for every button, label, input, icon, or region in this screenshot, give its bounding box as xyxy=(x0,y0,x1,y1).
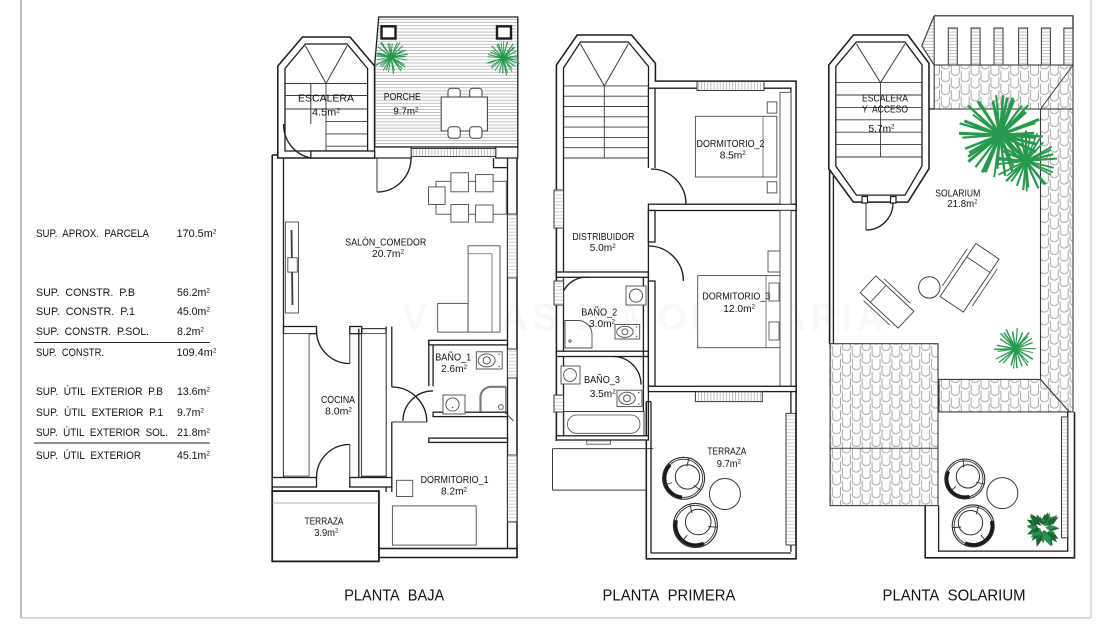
svg-text:3.9m2: 3.9m2 xyxy=(314,527,338,539)
svg-text:SUP. ÚTIL EXTERIOR SOL.: SUP. ÚTIL EXTERIOR SOL. xyxy=(36,426,168,439)
svg-text:12.0m2: 12.0m2 xyxy=(723,303,755,315)
svg-text:Y ACCESO: Y ACCESO xyxy=(862,104,908,116)
svg-text:ESCALERA: ESCALERA xyxy=(862,92,908,104)
svg-text:8.2m2: 8.2m2 xyxy=(441,486,467,498)
svg-text:PORCHE: PORCHE xyxy=(384,91,421,103)
svg-text:9.7m2: 9.7m2 xyxy=(393,106,418,118)
svg-text:109.4m2: 109.4m2 xyxy=(177,347,217,359)
svg-text:BAÑO_3: BAÑO_3 xyxy=(584,373,620,386)
svg-text:2.6m2: 2.6m2 xyxy=(441,363,467,375)
svg-text:SUP. APROX. PARCELA: SUP. APROX. PARCELA xyxy=(36,228,150,240)
svg-text:8.0m2: 8.0m2 xyxy=(325,406,352,418)
svg-text:SUP. ÚTIL EXTERIOR: SUP. ÚTIL EXTERIOR xyxy=(36,449,141,462)
svg-text:45.0m2: 45.0m2 xyxy=(177,306,210,318)
svg-text:DORMITORIO_3: DORMITORIO_3 xyxy=(702,290,770,302)
svg-text:TERRAZA: TERRAZA xyxy=(305,516,344,528)
svg-text:PLANTA BAJA: PLANTA BAJA xyxy=(344,587,445,604)
svg-text:DISTRIBUIDOR: DISTRIBUIDOR xyxy=(572,231,634,243)
svg-text:DORMITORIO_2: DORMITORIO_2 xyxy=(697,138,765,150)
svg-text:SALÓN_COMEDOR: SALÓN_COMEDOR xyxy=(345,235,426,248)
svg-text:8.5m2: 8.5m2 xyxy=(720,149,746,161)
svg-text:5.0m2: 5.0m2 xyxy=(590,242,616,254)
svg-text:TERRAZA: TERRAZA xyxy=(707,446,746,458)
svg-text:SUP. CONSTR. P.1: SUP. CONSTR. P.1 xyxy=(36,306,135,318)
svg-text:BAÑO_2: BAÑO_2 xyxy=(581,306,617,319)
svg-text:20.7m2: 20.7m2 xyxy=(372,248,404,260)
svg-text:5.7m2: 5.7m2 xyxy=(869,123,895,135)
svg-text:9.7m2: 9.7m2 xyxy=(717,458,741,470)
svg-text:PLANTA SOLARIUM: PLANTA SOLARIUM xyxy=(883,587,1026,604)
svg-text:9.7m2: 9.7m2 xyxy=(177,407,204,419)
svg-text:21.8m2: 21.8m2 xyxy=(177,427,210,439)
svg-text:56.2m2: 56.2m2 xyxy=(177,287,210,299)
svg-text:3.0m2: 3.0m2 xyxy=(589,318,615,330)
svg-text:PLANTA PRIMERA: PLANTA PRIMERA xyxy=(603,587,737,604)
svg-text:170.5m2: 170.5m2 xyxy=(177,228,217,240)
svg-text:COCINA: COCINA xyxy=(321,394,355,406)
svg-text:13.6m2: 13.6m2 xyxy=(177,386,210,398)
svg-text:45.1m2: 45.1m2 xyxy=(177,450,210,462)
svg-text:DORMITORIO_1: DORMITORIO_1 xyxy=(421,474,489,486)
svg-text:4.5m2: 4.5m2 xyxy=(312,107,340,119)
svg-text:3.5m2: 3.5m2 xyxy=(590,388,616,400)
svg-text:21.8m2: 21.8m2 xyxy=(947,198,977,210)
svg-text:ESCALERA: ESCALERA xyxy=(298,93,354,105)
svg-text:8.2m2: 8.2m2 xyxy=(177,326,204,338)
svg-text:SUP. CONSTR. P.SOL.: SUP. CONSTR. P.SOL. xyxy=(36,326,149,338)
svg-text:SUP. CONSTR. P.B: SUP. CONSTR. P.B xyxy=(36,287,135,299)
svg-text:BAÑO_1: BAÑO_1 xyxy=(435,351,471,364)
svg-text:SUP. ÚTIL EXTERIOR P.B: SUP. ÚTIL EXTERIOR P.B xyxy=(36,385,163,398)
svg-text:SUP. CONSTR.: SUP. CONSTR. xyxy=(36,347,104,359)
svg-text:SUP. ÚTIL EXTERIOR P.1: SUP. ÚTIL EXTERIOR P.1 xyxy=(36,406,163,419)
